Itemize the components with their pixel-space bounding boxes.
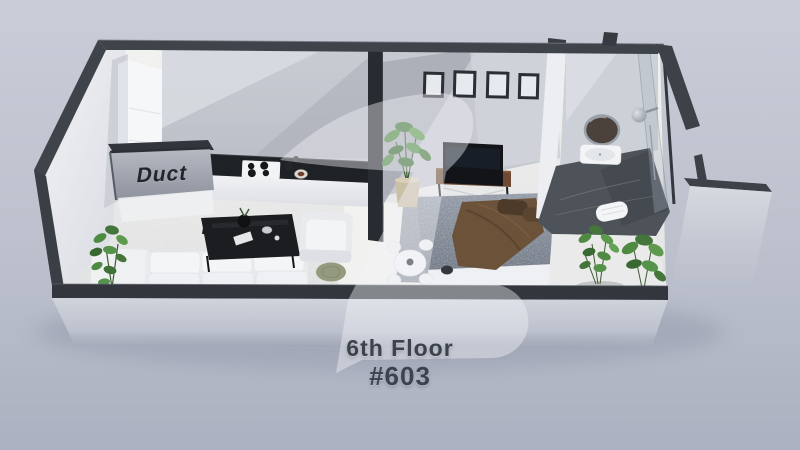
right-panel-face (668, 186, 772, 316)
table-vase (238, 215, 251, 228)
armchair (299, 211, 353, 263)
east-wall (656, 44, 700, 130)
floor-plan-render: Duct 6th Floor #603 (0, 0, 800, 450)
shower-head (632, 108, 647, 123)
caption: 6th Floor #603 (0, 336, 800, 391)
round-rug (316, 263, 346, 282)
duct-label: Duct (113, 152, 211, 197)
table-cup (275, 236, 280, 241)
table-bowl (262, 227, 272, 234)
floor-label: 6th Floor (0, 336, 800, 362)
unit-label: #603 (0, 362, 800, 391)
north-fin (602, 32, 618, 46)
sink (580, 144, 622, 164)
duct-label-text: Duct (135, 162, 189, 189)
stove-hob (242, 160, 281, 179)
round-mirror (585, 116, 619, 145)
